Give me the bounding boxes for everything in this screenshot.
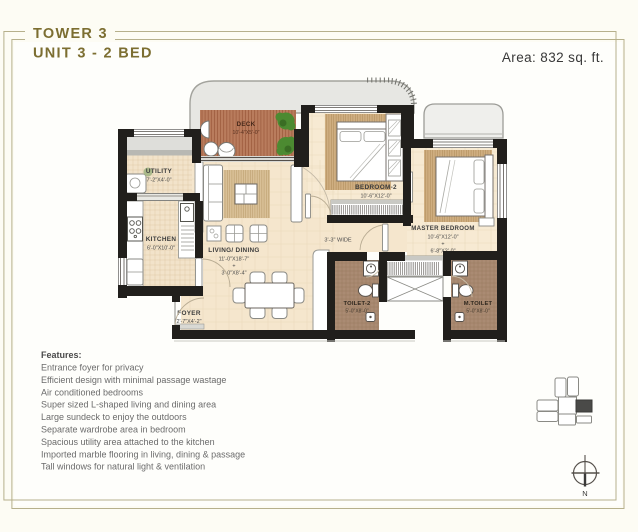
svg-text:FOYER: FOYER xyxy=(177,310,201,317)
svg-text:+: + xyxy=(232,264,235,270)
svg-text:Super sized L-shaped living an: Super sized L-shaped living and dining a… xyxy=(41,400,216,410)
svg-text:11'-0"X18'-7": 11'-0"X18'-7" xyxy=(219,257,250,263)
svg-text:KITCHEN: KITCHEN xyxy=(146,236,177,243)
svg-text:Spacious utility area attached: Spacious utility area attached to the ki… xyxy=(41,437,215,447)
svg-text:Air conditioned bedrooms: Air conditioned bedrooms xyxy=(41,387,144,397)
svg-text:N: N xyxy=(582,489,587,498)
svg-text:MASTER BEDROOM: MASTER BEDROOM xyxy=(411,225,474,232)
svg-text:Features:: Features: xyxy=(41,350,82,360)
svg-text:Separate wardrobe area in bedr: Separate wardrobe area in bedroom xyxy=(41,425,186,435)
svg-text:6'-0"X10'-0": 6'-0"X10'-0" xyxy=(147,246,175,252)
svg-text:7'-2"X4'-0": 7'-2"X4'-0" xyxy=(146,178,171,184)
svg-text:Area: 832 sq. ft.: Area: 832 sq. ft. xyxy=(502,50,604,65)
svg-text:Efficient design with minimal: Efficient design with minimal passage wa… xyxy=(41,375,226,385)
svg-text:LIVING/ DINING: LIVING/ DINING xyxy=(208,247,259,254)
svg-text:TOILET-2: TOILET-2 xyxy=(344,301,371,307)
svg-text:Large sundeck to enjoy the out: Large sundeck to enjoy the outdoors xyxy=(41,412,187,422)
svg-text:UTILITY: UTILITY xyxy=(146,168,173,175)
svg-text:UNIT 3 - 2 BED: UNIT 3 - 2 BED xyxy=(33,46,153,62)
svg-text:DECK: DECK xyxy=(237,121,256,128)
svg-text:+: + xyxy=(441,242,444,248)
svg-text:Tall windows for natural light: Tall windows for natural light & ventila… xyxy=(41,462,205,472)
svg-text:5'-0"X8'-0": 5'-0"X8'-0" xyxy=(345,309,368,315)
svg-text:10'-6"X12'-0": 10'-6"X12'-0" xyxy=(360,194,391,200)
svg-text:10'-4"X5'-0": 10'-4"X5'-0" xyxy=(232,130,259,136)
svg-text:TOWER 3: TOWER 3 xyxy=(33,26,108,42)
svg-text:3'-3" WIDE: 3'-3" WIDE xyxy=(324,238,352,244)
svg-text:Entrance foyer for privacy: Entrance foyer for privacy xyxy=(41,363,144,373)
svg-text:5'-0"X8'-0": 5'-0"X8'-0" xyxy=(466,309,489,315)
svg-text:10'-6"X12'-0": 10'-6"X12'-0" xyxy=(427,235,458,241)
svg-text:BEDROOM-2: BEDROOM-2 xyxy=(355,184,397,191)
svg-text:M.TOILET: M.TOILET xyxy=(464,301,493,307)
svg-text:Imported marble flooring in li: Imported marble flooring in living, dini… xyxy=(41,449,245,459)
